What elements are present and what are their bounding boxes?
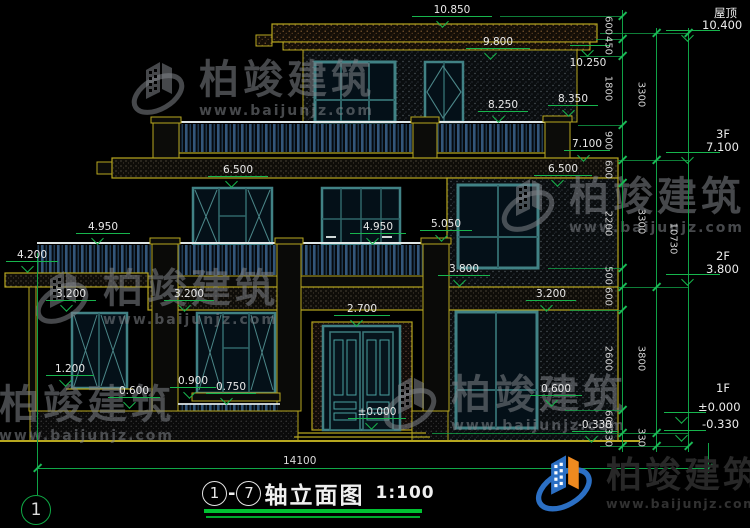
dim-value: 2600 — [603, 337, 614, 381]
title-underline-thick — [204, 509, 422, 513]
brand-logo-icon — [534, 450, 598, 518]
ext-line — [578, 125, 622, 126]
level-mark-2700: 2.700 — [334, 303, 390, 328]
level-mark-0600-left: 0.600 — [108, 385, 160, 410]
level-symbol-roof — [666, 30, 720, 43]
level-mark-4200: 4.200 — [6, 249, 58, 274]
level-mark-3200-c: 3.200 — [526, 288, 576, 313]
level-symbol-ground — [664, 430, 706, 443]
watermark-url: www.baijunjz.com — [0, 428, 175, 444]
dim-value: 600 — [603, 148, 614, 192]
elevation-drawing-canvas: 柏竣建筑 www.baijunjz.com 柏竣建筑 www.baijunjz.… — [0, 0, 750, 528]
level-mark-ridge: 10.850 — [412, 4, 492, 29]
floor-label-3f: 3F — [716, 127, 730, 141]
level-mark-6500-left: 6.500 — [208, 164, 268, 189]
brand-url: www.baijunjz.com — [606, 496, 750, 511]
floor-label-2f: 2F — [716, 249, 730, 263]
level-mark-4950-center: 4.950 — [350, 221, 406, 246]
title-axis-end: 7 — [236, 481, 261, 506]
level-mark-3200-a: 3.200 — [46, 288, 96, 313]
title-axis-start: 1 — [202, 481, 227, 506]
drawing-title: 1 - 7 轴立面图 1:100 — [202, 476, 435, 510]
level-symbol-2f — [666, 274, 720, 287]
watermark-url: www.baijunjz.com — [569, 220, 745, 236]
second-floor-window-left — [193, 188, 272, 245]
watermark-url: www.baijunjz.com — [103, 312, 279, 328]
dim-value: 3300 — [636, 200, 647, 244]
level-mark-5050: 5.050 — [420, 218, 472, 243]
title-underline-thin — [206, 516, 420, 518]
axis-line-1 — [37, 253, 38, 495]
level-mark-6500-right: 6.500 — [534, 163, 592, 188]
dim-value: 1800 — [603, 67, 614, 111]
floor-label-1f: 1F — [716, 381, 730, 395]
level-mark-3200-b: 3.200 — [164, 288, 214, 313]
ext-line — [432, 433, 688, 434]
brand-logo: 柏竣建筑 www.baijunjz.com — [534, 450, 750, 518]
level-mark-0600-right: 0.600 — [530, 383, 582, 408]
level-mark-0750: 0.750 — [206, 381, 256, 406]
level-mark-zero-door: ±0.000 — [348, 406, 406, 431]
brand-name: 柏竣建筑 — [606, 458, 750, 494]
title-scale: 1:100 — [375, 483, 434, 503]
ext-line — [570, 310, 622, 311]
swing-dash — [326, 236, 336, 238]
title-name: 轴立面图 — [264, 476, 364, 510]
dim-chain-inner — [622, 10, 623, 452]
level-mark-8350: 8.350 — [548, 93, 598, 118]
swing-dash — [382, 236, 392, 238]
dim-value: 2200 — [603, 202, 614, 246]
ground-level: -0.330 — [702, 417, 739, 431]
watermark-logo-icon — [130, 57, 190, 121]
penthouse-door-window — [425, 62, 463, 122]
level-symbol-3f — [666, 152, 720, 165]
dim-chain-overall — [688, 28, 689, 452]
axis-bubble-1: 1 — [21, 495, 51, 525]
dim-value: 3300 — [636, 73, 647, 117]
watermark-brand: 柏竣建筑 — [199, 60, 375, 100]
dim-value-overall-height: 10730 — [668, 217, 679, 261]
title-separator: - — [228, 483, 235, 504]
dim-value: 450 — [603, 24, 614, 68]
dim-value: 3800 — [636, 337, 647, 381]
watermark-url: www.baijunjz.com — [199, 103, 375, 119]
dim-chain-outer — [656, 28, 657, 452]
watermark-brand: 柏竣建筑 — [569, 177, 745, 217]
level-mark-8250: 8.250 — [478, 99, 528, 124]
dim-value: 600 — [603, 275, 614, 319]
level-mark-4950-left: 4.950 — [76, 221, 130, 246]
level-mark-3800-center: 3.800 — [438, 263, 490, 288]
level-mark-9800: 9.800 — [466, 36, 530, 61]
level-symbol-1f — [664, 412, 706, 425]
level-mark-1200: 1.200 — [46, 363, 94, 388]
dim-value-overall-width: 14100 — [280, 455, 319, 467]
watermark: 柏竣建筑 www.baijunjz.com — [130, 57, 375, 121]
